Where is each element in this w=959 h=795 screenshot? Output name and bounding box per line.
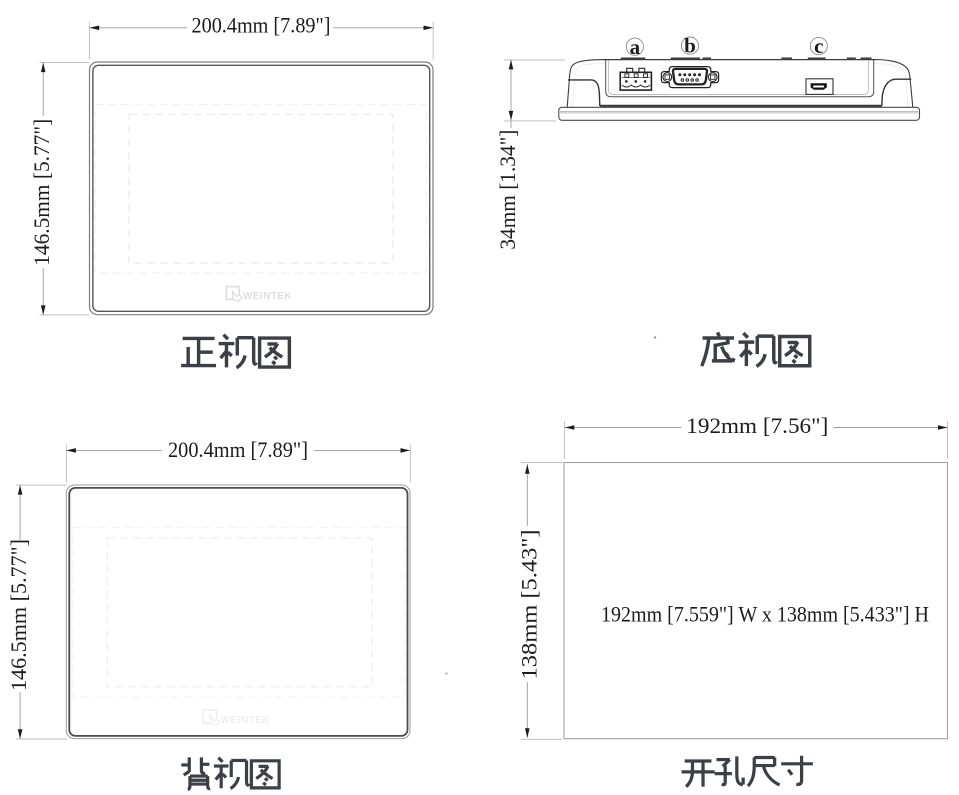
svg-text:200.4mm [7.89"]: 200.4mm [7.89"] [192,12,331,37]
svg-text:WEINTEK: WEINTEK [243,291,292,302]
svg-text:34mm [1.34"]: 34mm [1.34"] [495,130,520,250]
svg-text:146.5mm [5.77"]: 146.5mm [5.77"] [6,539,31,691]
svg-text:146.5mm [5.77"]: 146.5mm [5.77"] [29,119,54,266]
svg-text:c: c [814,34,823,58]
svg-text:WEINTEK: WEINTEK [221,715,271,726]
svg-text:200.4mm [7.89"]: 200.4mm [7.89"] [168,437,308,462]
svg-text:192mm [7.559"] W x 138mm [5.43: 192mm [7.559"] W x 138mm [5.433"] H [601,602,929,627]
svg-text:138mm [5.43"]: 138mm [5.43"] [516,530,541,680]
svg-text:a: a [630,35,641,59]
svg-text:192mm [7.56"]: 192mm [7.56"] [686,413,828,438]
svg-text:b: b [684,34,696,58]
